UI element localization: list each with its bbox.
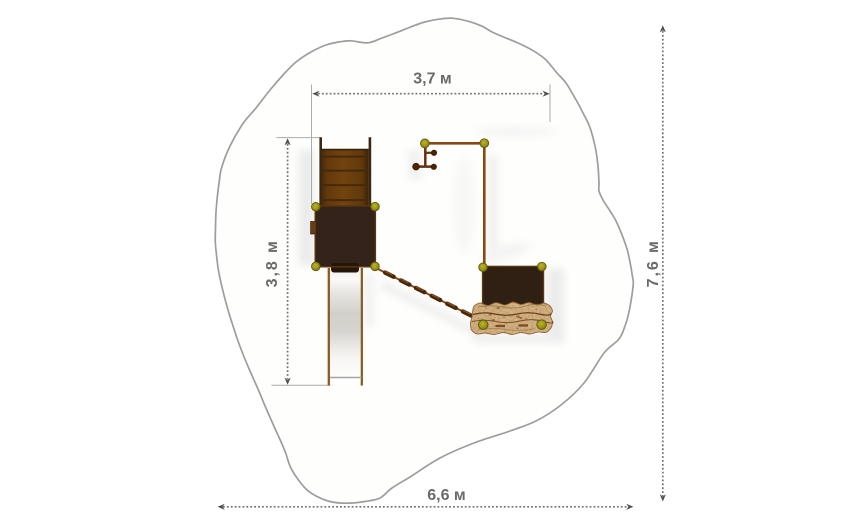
svg-text:3,8 м: 3,8 м: [264, 239, 281, 287]
svg-text:6,6 м: 6,6 м: [427, 487, 466, 504]
svg-text:7,6 м: 7,6 м: [645, 239, 662, 287]
svg-text:3,7 м: 3,7 м: [413, 71, 452, 88]
